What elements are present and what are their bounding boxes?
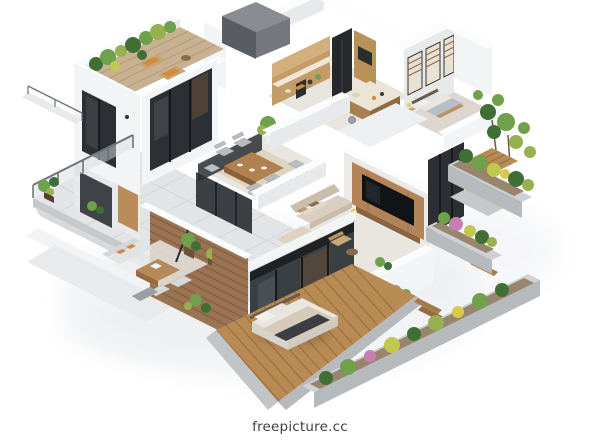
floorplan-render-page: freepicture.cc: [0, 0, 600, 442]
bedroom-1: [396, 21, 500, 150]
isometric-house-render: [0, 0, 600, 442]
watermark: freepicture.cc: [0, 419, 600, 435]
side-balcony: [22, 86, 82, 124]
deck-side-table: [346, 249, 358, 256]
wall-lamp: [125, 115, 129, 119]
